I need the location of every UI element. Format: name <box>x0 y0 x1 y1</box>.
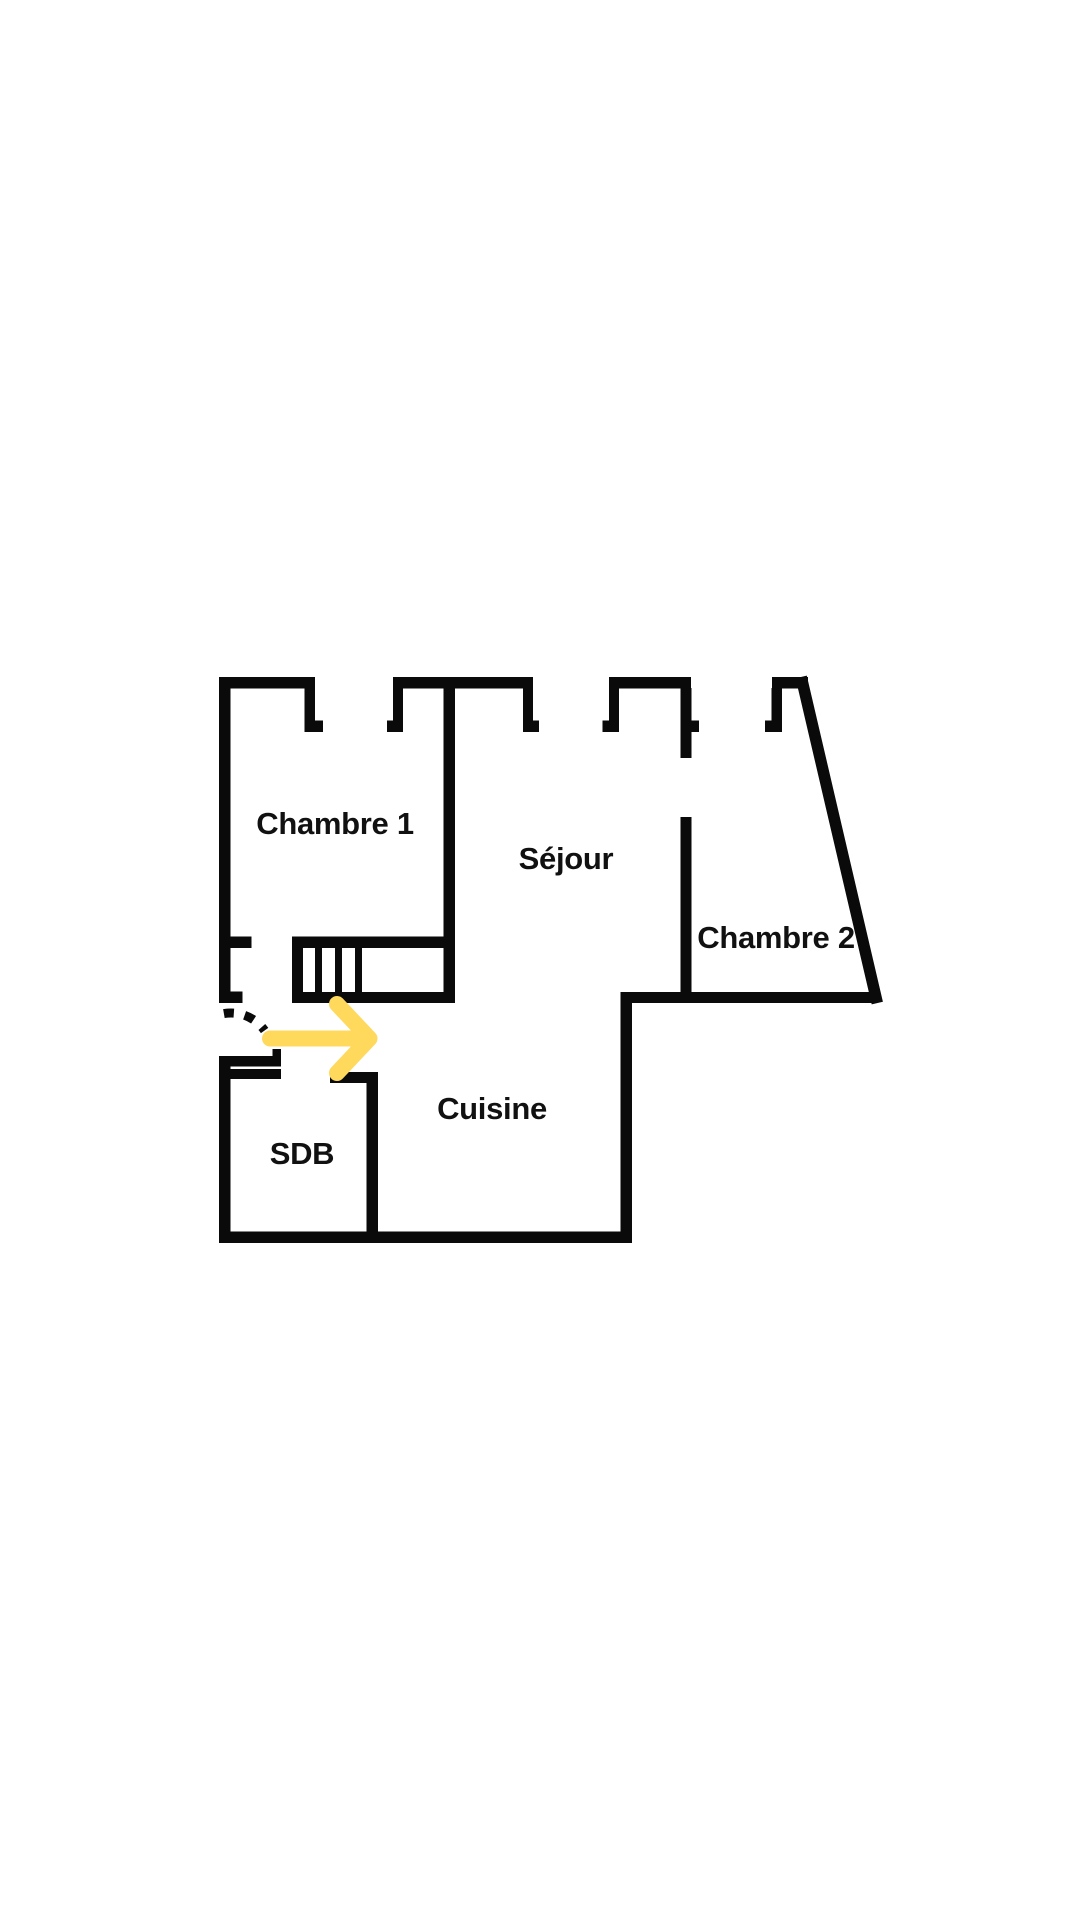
window-opening-3 <box>691 688 782 732</box>
left-wall-stub-corridor <box>230 937 252 949</box>
bottom-wall-chambre2 <box>622 992 876 1003</box>
top-wall-segment-3 <box>609 677 691 689</box>
window-opening-2 <box>523 688 619 732</box>
room-label-sejour: Séjour <box>519 841 614 876</box>
wall-sejour-chambre2-lower <box>681 817 692 1003</box>
left-wall-stub-entry <box>230 992 243 1004</box>
room-label-chambre2: Chambre 2 <box>697 920 855 955</box>
floor-plan-page: Chambre 1 Séjour Chambre 2 Cuisine SDB <box>0 0 1080 1920</box>
entrance-door-swing-arc <box>224 1013 265 1031</box>
bottom-wall-cuisine <box>219 1232 632 1244</box>
cuisine-right-wall <box>621 992 633 1243</box>
entrance-arrow-icon <box>270 1004 370 1073</box>
top-wall-segment-1 <box>219 677 315 689</box>
wall-sejour-chambre2-upper <box>681 688 692 758</box>
top-wall-segment-2 <box>393 677 533 689</box>
floor-plan-drawing: Chambre 1 Séjour Chambre 2 Cuisine SDB <box>0 0 1080 1920</box>
room-label-sdb: SDB <box>270 1136 335 1171</box>
room-label-cuisine: Cuisine <box>437 1091 547 1126</box>
window-opening-1 <box>305 688 404 732</box>
stair-step <box>315 948 322 992</box>
room-label-chambre1: Chambre 1 <box>256 806 414 841</box>
left-wall-upper <box>219 677 231 1003</box>
staircase <box>292 937 455 1004</box>
stair-step <box>335 948 342 992</box>
stair-step <box>355 948 362 992</box>
wall-chambre1-sejour <box>444 688 456 1003</box>
